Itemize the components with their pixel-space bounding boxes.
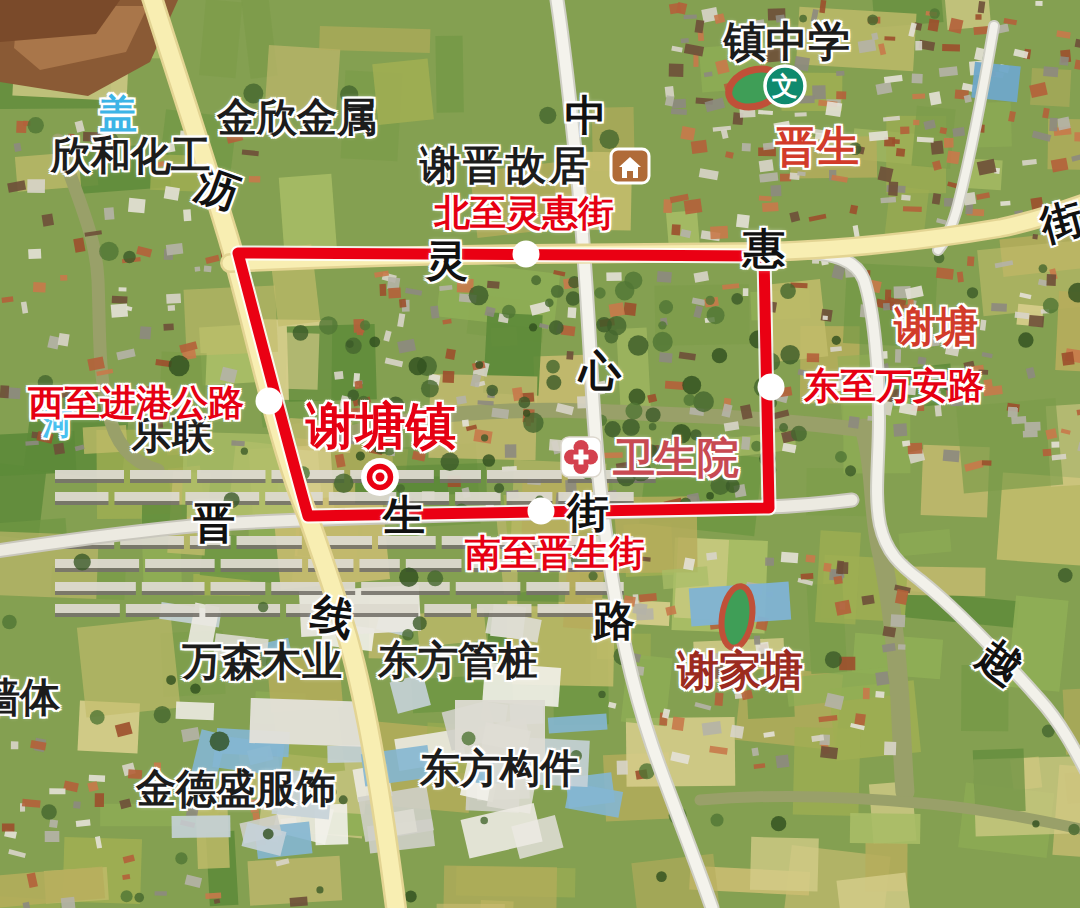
label-health-center: 卫生院: [613, 437, 739, 479]
school-icon-char: 文: [771, 71, 798, 101]
map-screenshot: 镇中学 金欣金属 盖 欣和化工 谢晋故居 北至灵惠街 晋生 河 西至进港公路 乐…: [0, 0, 1080, 908]
label-boundary-north: 北至灵惠街: [434, 195, 614, 231]
school-icon: 文: [761, 62, 809, 110]
road-char: 晋: [193, 502, 235, 544]
label-xietang-town: 谢塘镇: [306, 401, 456, 451]
label-jinxin-metal: 金欣金属: [217, 97, 377, 137]
road-char: 路: [593, 600, 635, 642]
road-char: 心: [579, 350, 621, 392]
road-char: 街: [567, 492, 609, 534]
label-wall-partial: 墙体: [0, 677, 60, 717]
boundary-marker-east: [758, 374, 785, 401]
boundary-marker-north: [513, 241, 540, 268]
label-xiejin-residence: 谢晋故居: [420, 145, 592, 185]
label-xiejiatang: 谢家塘: [677, 650, 803, 692]
label-boundary-south: 南至晋生街: [465, 535, 645, 571]
label-boundary-west: 西至进港公路: [28, 385, 244, 421]
road-char: 惠: [743, 228, 785, 270]
road-char: 灵: [426, 240, 468, 282]
boundary-marker-south: [528, 498, 555, 525]
label-jinsheng-area: 晋生: [775, 126, 859, 168]
label-boundary-east: 东至万安路: [804, 368, 984, 404]
home-icon: [608, 146, 652, 186]
label-gai-blue: 盖: [99, 95, 137, 133]
label-xietang-east: 谢塘: [894, 306, 978, 348]
label-dongfang-pipe: 东方管桩: [378, 640, 538, 680]
label-wansen-wood: 万森木业: [182, 641, 342, 681]
road-char: 中: [565, 95, 607, 137]
hospital-icon: [558, 434, 604, 480]
label-jindesheng-clothing: 金德盛服饰: [136, 768, 336, 808]
label-xinhe-chemical: 欣和化工: [51, 135, 211, 175]
label-dongfang-component: 东方构件: [420, 748, 580, 788]
label-town-middle-school: 镇中学: [724, 21, 850, 63]
road-char: 生: [383, 495, 425, 537]
boundary-marker-west: [256, 388, 283, 415]
